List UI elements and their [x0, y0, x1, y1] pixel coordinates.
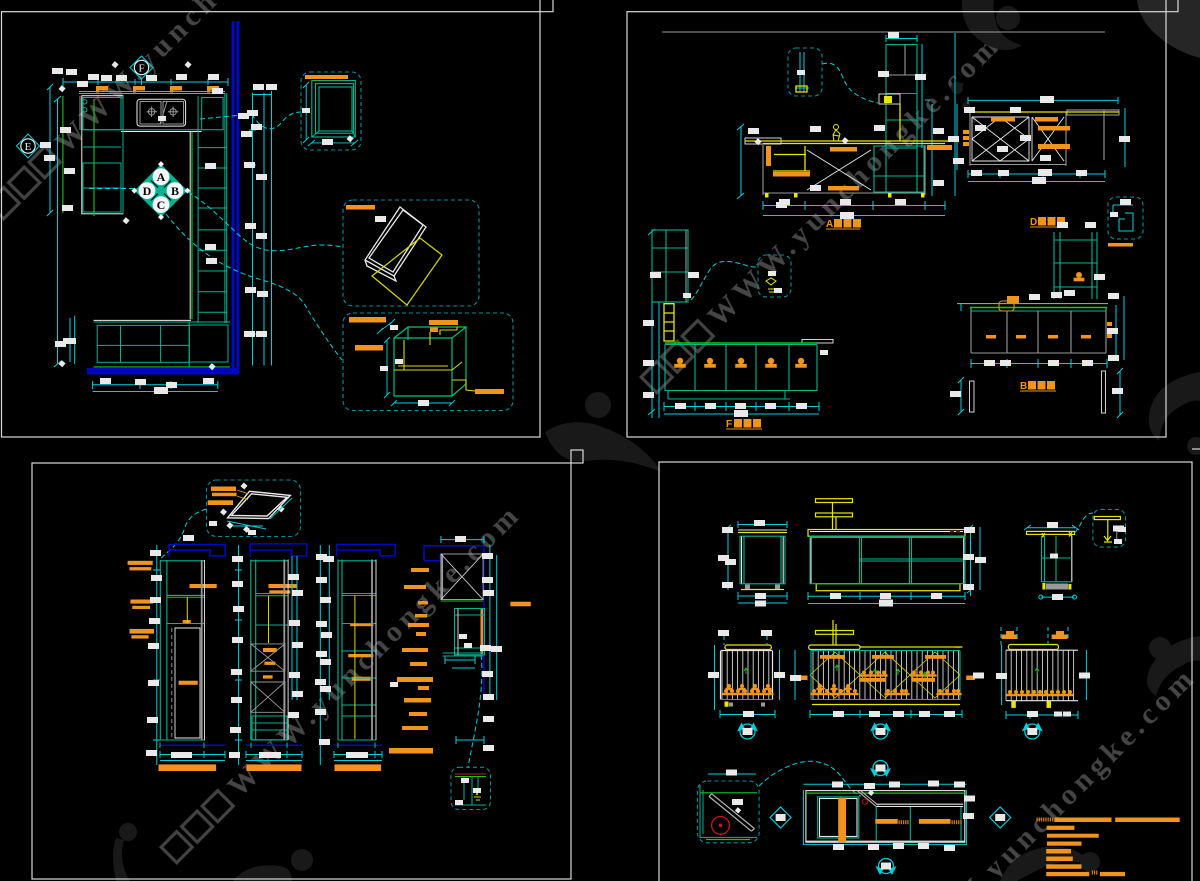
- svg-text:D: D: [143, 184, 152, 198]
- svg-text:B: B: [171, 184, 179, 198]
- svg-text:B: B: [1020, 381, 1027, 392]
- svg-text:F: F: [726, 419, 732, 430]
- svg-text:A: A: [157, 170, 166, 184]
- svg-text:C: C: [157, 198, 166, 212]
- svg-text:F: F: [138, 63, 144, 75]
- svg-text:E: E: [25, 141, 32, 153]
- svg-text:A: A: [826, 219, 833, 230]
- svg-text:D: D: [1030, 217, 1037, 228]
